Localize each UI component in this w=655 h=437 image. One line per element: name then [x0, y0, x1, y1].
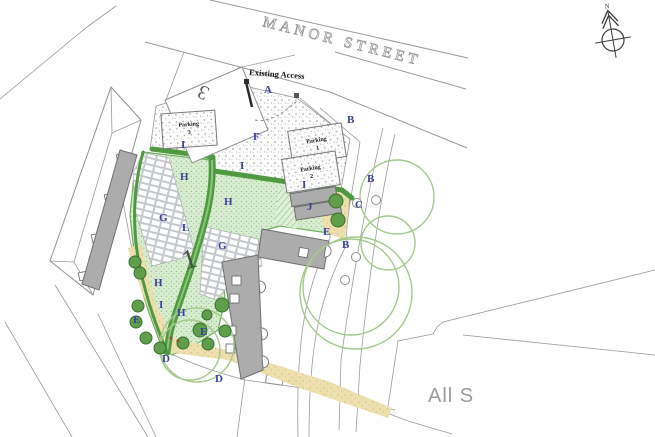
- street-name-label: MANOR STREET: [261, 14, 423, 69]
- north-arrow-icon: N: [589, 0, 634, 61]
- zone-label-i: I: [302, 179, 306, 191]
- zone-label-d: D: [162, 353, 170, 365]
- dwelling-upper-wing: [258, 229, 329, 269]
- zone-label-b: B: [347, 114, 355, 126]
- zone-label-i: I: [240, 160, 244, 172]
- zone-label-j: J: [307, 201, 313, 213]
- zone-label-h: H: [177, 307, 186, 319]
- zone-label-h: H: [180, 171, 189, 183]
- zone-label-c: C: [355, 199, 363, 211]
- dwelling-lower-wing: [222, 255, 263, 379]
- zone-label-i: I: [181, 139, 185, 151]
- zone-label-e: E: [200, 326, 207, 338]
- adjacent-site-label: All S: [428, 385, 474, 407]
- zone-label-h: H: [224, 196, 233, 208]
- zone-label-i: I: [159, 299, 163, 311]
- zone-label-e: E: [133, 314, 140, 326]
- zone-label-g: G: [218, 240, 227, 252]
- north-label: N: [603, 2, 610, 11]
- zone-label-h: H: [154, 277, 163, 289]
- zone-label-b: B: [367, 173, 375, 185]
- zone-label-l: L: [182, 222, 189, 234]
- zone-label-e: E: [323, 226, 330, 238]
- zone-label-g: G: [159, 212, 168, 224]
- site-plan-canvas: Parking 3 Parking 1 Parking 2: [0, 0, 655, 437]
- zone-label-b: B: [342, 239, 350, 251]
- zone-label-f: F: [253, 131, 260, 143]
- zone-label-a: A: [264, 84, 272, 96]
- door-swing: [261, 328, 268, 340]
- parking-bay-3: Parking 3: [161, 110, 217, 149]
- zone-label-d: D: [215, 373, 223, 385]
- parking-3-number: 3: [188, 130, 191, 136]
- existing-access-label: Existing Access: [249, 67, 306, 81]
- door-swing: [259, 281, 266, 293]
- site-plan: Parking 3 Parking 1 Parking 2: [0, 0, 655, 437]
